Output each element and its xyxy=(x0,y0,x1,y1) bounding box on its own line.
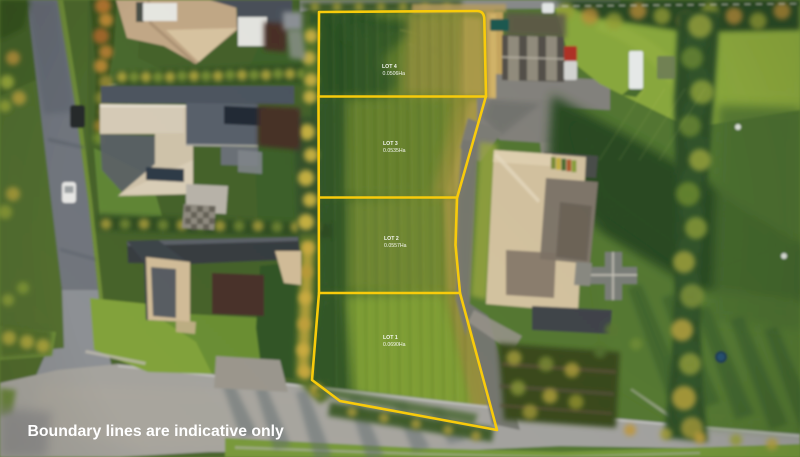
svg-text:0.0690Ha: 0.0690Ha xyxy=(383,342,406,348)
svg-text:0.0506Ha: 0.0506Ha xyxy=(383,71,406,77)
svg-text:Boundary lines are indicative: Boundary lines are indicative only xyxy=(28,423,285,440)
svg-text:LOT 2: LOT 2 xyxy=(384,236,399,242)
svg-text:0.0557Ha: 0.0557Ha xyxy=(384,243,407,249)
svg-text:LOT 1: LOT 1 xyxy=(383,335,398,341)
svg-text:0.0535Ha: 0.0535Ha xyxy=(383,148,406,154)
svg-text:LOT 3: LOT 3 xyxy=(383,141,398,147)
svg-text:LOT 4: LOT 4 xyxy=(382,64,397,70)
